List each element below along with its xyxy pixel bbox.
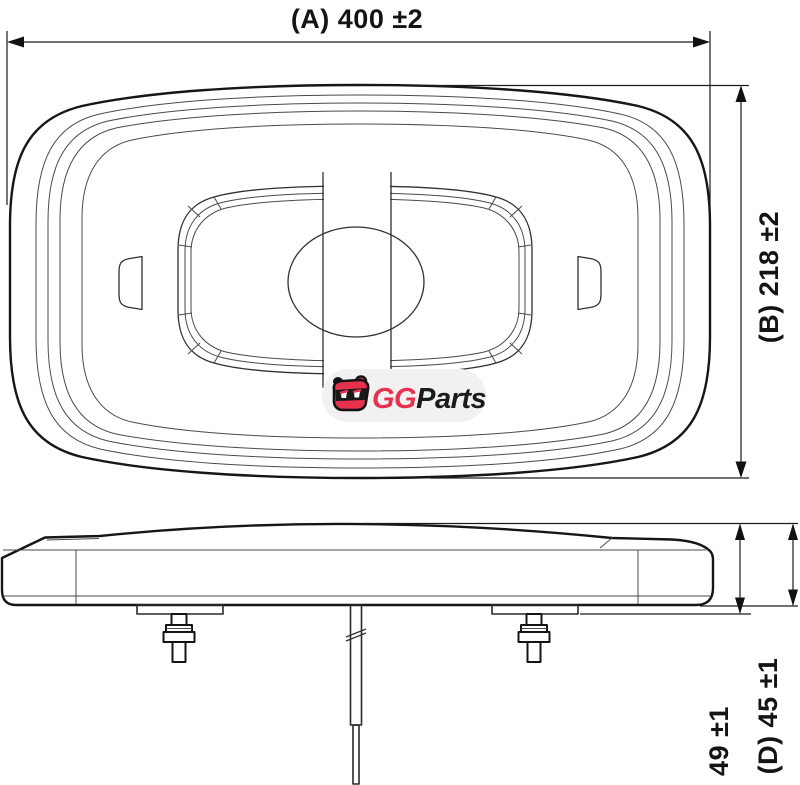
center-slot-mask [324,172,390,388]
dimension-a-label: (A) 400 ±2 [291,4,423,34]
dimension-b-arrow-top-icon [736,86,747,103]
brand-watermark: GGParts [322,369,487,422]
brand-logo-icon [333,377,368,411]
dimension-height-total: 49 ±1 [365,524,798,776]
side-body-outline [2,524,713,605]
dimension-d-arrow-top-icon [788,524,798,541]
mount-tab-left [119,257,142,310]
dimension-a-arrow-left-icon [7,37,24,48]
mount-bracket-left [137,605,223,614]
dimension-d-label: (D) 45 ±1 [753,658,783,775]
dimension-drawing-canvas: (A) 400 ±2 [0,0,800,785]
reflector-module [178,172,532,388]
mount-bracket-right [492,605,578,614]
cable-wire [353,725,359,784]
mount-tab-right [578,257,601,310]
dimension-a-arrow-right-icon [693,37,710,48]
power-cable [346,605,366,784]
dimension-b-arrow-bottom-icon [736,462,747,479]
side-view [2,524,713,784]
brand-name-first: GG [372,383,416,415]
brand-name: GGParts [372,383,487,415]
dimension-d-arrow-bottom-icon [788,590,798,607]
side-lens-skirt-left [47,539,99,541]
mounting-bolt-right [519,614,550,662]
cable-break-mark [346,629,366,641]
mounting-bolt-left [164,614,195,662]
dimension-49-label: 49 ±1 [704,706,734,776]
dimension-b-label: (B) 218 ±2 [754,211,784,343]
cable-conduit [351,605,362,725]
dimension-49-arrow-top-icon [735,524,745,541]
technical-drawing-page: (A) 400 ±2 [0,0,800,785]
side-lens-skirt-right [600,538,612,548]
brand-name-second: Parts [416,383,486,415]
